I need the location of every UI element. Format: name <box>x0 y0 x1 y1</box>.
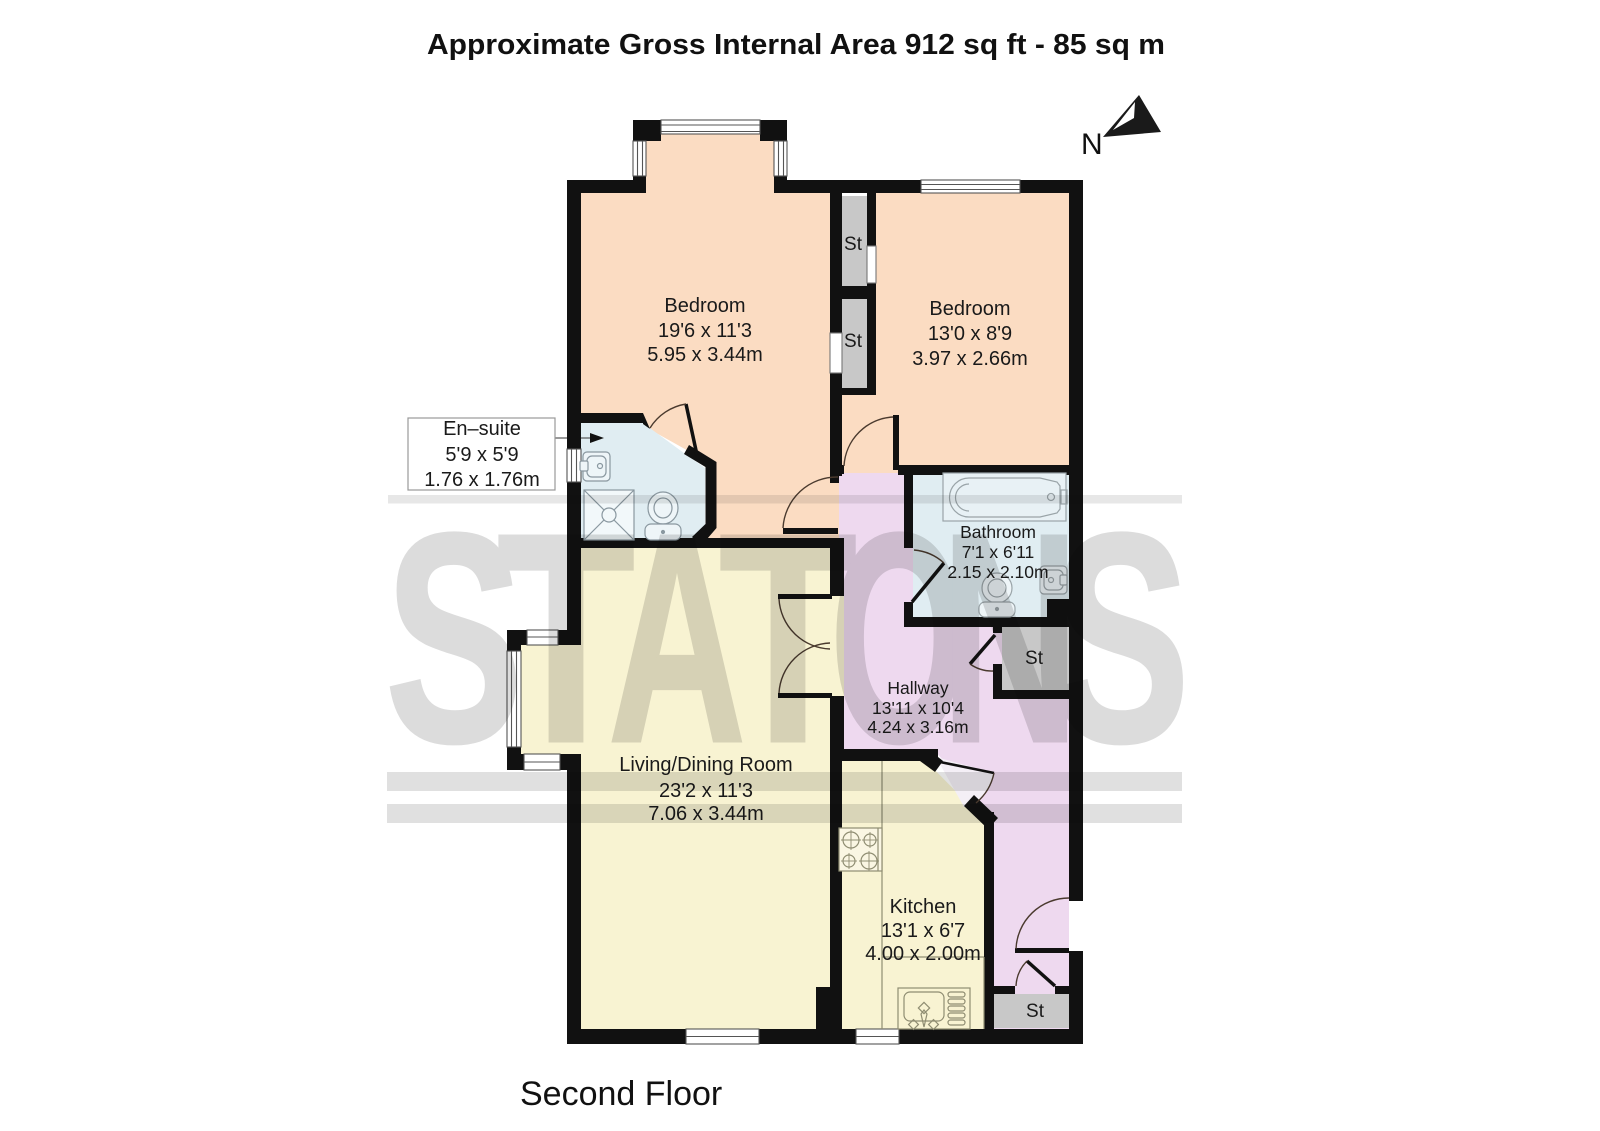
svg-text:5.95 x 3.44m: 5.95 x 3.44m <box>647 344 763 366</box>
svg-text:En–suite: En–suite <box>443 418 521 440</box>
svg-text:St: St <box>844 234 863 255</box>
svg-text:Kitchen: Kitchen <box>890 896 957 918</box>
svg-text:4.00 x 2.00m: 4.00 x 2.00m <box>865 943 981 965</box>
svg-text:N: N <box>1081 128 1103 161</box>
svg-text:Bedroom: Bedroom <box>929 298 1010 320</box>
svg-text:19'6 x 11'3: 19'6 x 11'3 <box>658 320 752 342</box>
svg-text:St: St <box>1026 1001 1045 1022</box>
svg-text:5'9 x 5'9: 5'9 x 5'9 <box>445 444 518 466</box>
svg-text:3.97 x 2.66m: 3.97 x 2.66m <box>912 348 1028 370</box>
svg-text:Second Floor: Second Floor <box>520 1075 722 1113</box>
svg-text:Approximate Gross Internal Are: Approximate Gross Internal Area 912 sq f… <box>427 29 1165 61</box>
svg-text:13'0 x 8'9: 13'0 x 8'9 <box>928 323 1012 345</box>
svg-text:St: St <box>844 331 863 352</box>
svg-text:Bedroom: Bedroom <box>664 295 745 317</box>
svg-text:STATONS: STATONS <box>385 472 1190 805</box>
svg-text:13'1 x 6'7: 13'1 x 6'7 <box>881 920 965 942</box>
